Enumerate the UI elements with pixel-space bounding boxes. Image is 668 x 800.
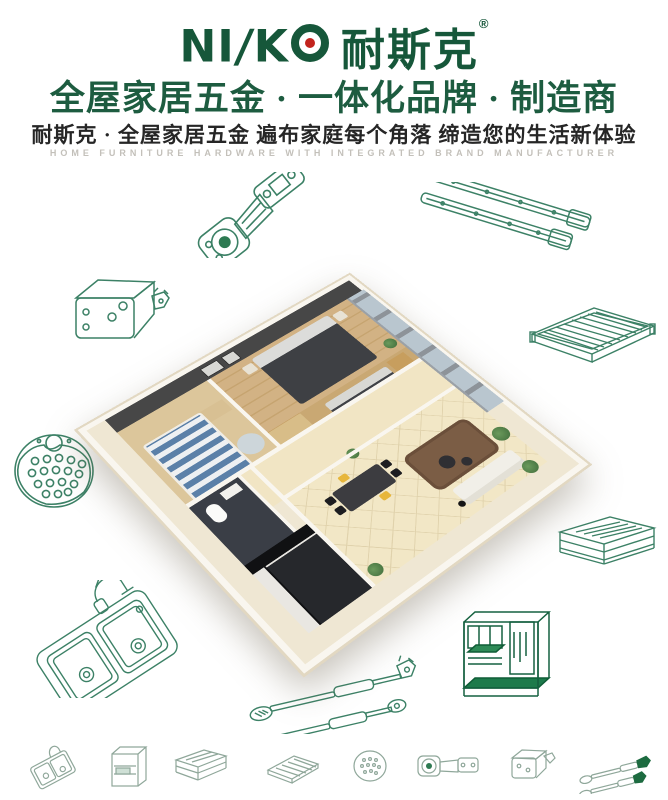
main-headline: 全屋家居五金 · 一体化品牌 · 制造商 (0, 70, 668, 121)
sub-headline: 耐斯克 · 全屋家居五金 遍布家庭每个角落 缔造您的生活新体验 (0, 119, 668, 149)
wire-basket-icon (168, 742, 232, 799)
logo-red-dot (305, 38, 315, 48)
registered-trademark-symbol: ® (479, 16, 489, 31)
brand-logo: NI/K耐斯克® (0, 14, 668, 78)
logo-text-k: K (254, 20, 289, 72)
logo-chinese-name: 耐斯克 (341, 14, 479, 78)
hinge-icon (414, 742, 482, 795)
wire-cabinet-icon (100, 742, 156, 799)
bracket-icon (504, 742, 560, 795)
plate-drawing (15, 435, 93, 507)
sink-icon (22, 742, 82, 799)
logo-latin-part1: NI/K (180, 20, 289, 72)
english-tagline: HOME FURNITURE HARDWARE WITH INTEGRATED … (0, 148, 668, 158)
gas-strut-icon (574, 742, 658, 799)
basket-drawing (560, 517, 654, 564)
struts-drawing (237, 653, 420, 734)
apartment-3d-render (88, 232, 558, 657)
wire-basket-sketch (546, 510, 666, 582)
logo-o-icon (291, 24, 329, 62)
perforated-plate-icon (348, 742, 392, 795)
wire-shelf-icon (262, 742, 324, 799)
apartment-floorplan (78, 275, 589, 674)
gas-lift-struts-sketch (236, 650, 420, 734)
poster: { "brand": { "logo": { "part1": "NI", "s… (0, 0, 668, 800)
logo-text-ni: NI (180, 20, 235, 72)
